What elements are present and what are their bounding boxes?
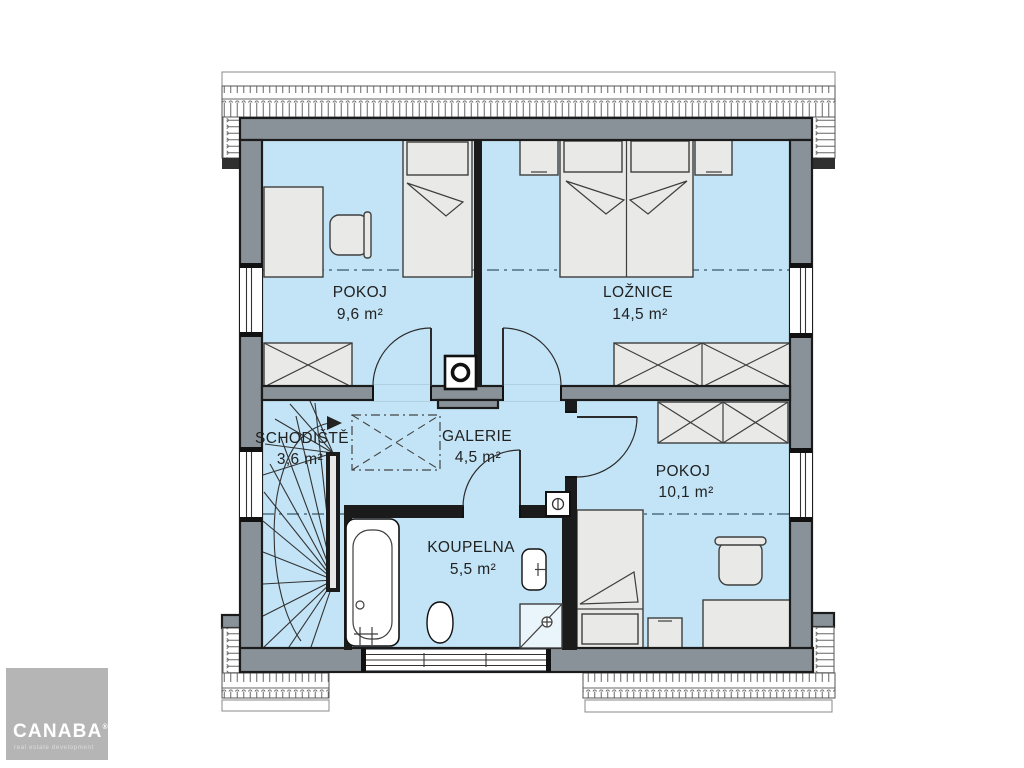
- window-bathroom: [361, 648, 551, 672]
- washbasin: [522, 549, 546, 590]
- floor-plan-page: POKOJ 9,6 m² LOŽNICE 14,5 m² SCHODIŠTĚ 3…: [0, 0, 1024, 768]
- partition-pokoj-lower: [562, 505, 577, 650]
- brand-tagline: real estate development: [14, 744, 94, 751]
- chair-back: [715, 537, 766, 545]
- pillow: [631, 141, 689, 172]
- single-bed: [577, 510, 643, 648]
- pillow: [582, 614, 638, 644]
- pillow: [407, 142, 468, 175]
- bathroom-wall: [344, 505, 463, 518]
- window-right-upper: [790, 263, 812, 338]
- room-label-pokoj-lower: POKOJ: [656, 463, 711, 480]
- double-bed: [560, 138, 693, 277]
- nightstand: [695, 138, 732, 175]
- chair: [719, 542, 762, 585]
- wall-right: [790, 140, 812, 672]
- chair-back: [364, 212, 371, 258]
- wall-top: [240, 118, 812, 140]
- room-label-schodiste: SCHODIŠTĚ: [255, 430, 349, 447]
- brand-text: CANABA®: [13, 721, 109, 742]
- door-opening: [503, 385, 561, 401]
- wardrobe: [264, 343, 352, 387]
- nightstand: [520, 138, 558, 175]
- floor-plan-drawing: POKOJ 9,6 m² LOŽNICE 14,5 m² SCHODIŠTĚ 3…: [0, 0, 1024, 768]
- door-opening: [463, 505, 520, 518]
- bathtub: [346, 519, 399, 646]
- door-opening: [565, 412, 577, 477]
- shower: [520, 604, 562, 648]
- room-label-koupelna: KOUPELNA: [427, 539, 515, 556]
- wardrobe: [614, 343, 790, 387]
- toilet: [427, 602, 453, 643]
- room-area-koupelna: 5,5 m²: [450, 561, 496, 578]
- room-area-schodiste: 3,6 m²: [277, 451, 323, 468]
- room-label-loznice: LOŽNICE: [603, 284, 673, 301]
- partition-bedrooms: [474, 140, 482, 386]
- door-opening: [373, 385, 431, 401]
- desk: [703, 600, 790, 648]
- room-area-pokoj-upper: 9,6 m²: [337, 306, 383, 323]
- stair-railing-core: [330, 456, 336, 588]
- window-right-lower: [790, 448, 812, 522]
- nightstand: [648, 618, 682, 648]
- room-area-galerie: 4,5 m²: [455, 449, 501, 466]
- window-left-lower: [240, 447, 262, 522]
- wardrobe: [658, 402, 788, 443]
- chimney: [445, 356, 476, 389]
- window-left-upper: [240, 263, 262, 337]
- desk: [264, 187, 323, 277]
- vent-shaft: [546, 492, 570, 516]
- canaba-logo: CANABA® real estate development: [6, 668, 109, 760]
- chair: [330, 215, 368, 255]
- chimney-base: [438, 400, 498, 408]
- room-label-galerie: GALERIE: [442, 428, 512, 445]
- room-area-loznice: 14,5 m²: [612, 306, 667, 323]
- room-label-pokoj-upper: POKOJ: [333, 284, 388, 301]
- wall-left: [240, 140, 262, 672]
- pillow: [564, 141, 622, 172]
- single-bed: [403, 138, 472, 277]
- room-area-pokoj-lower: 10,1 m²: [658, 484, 713, 501]
